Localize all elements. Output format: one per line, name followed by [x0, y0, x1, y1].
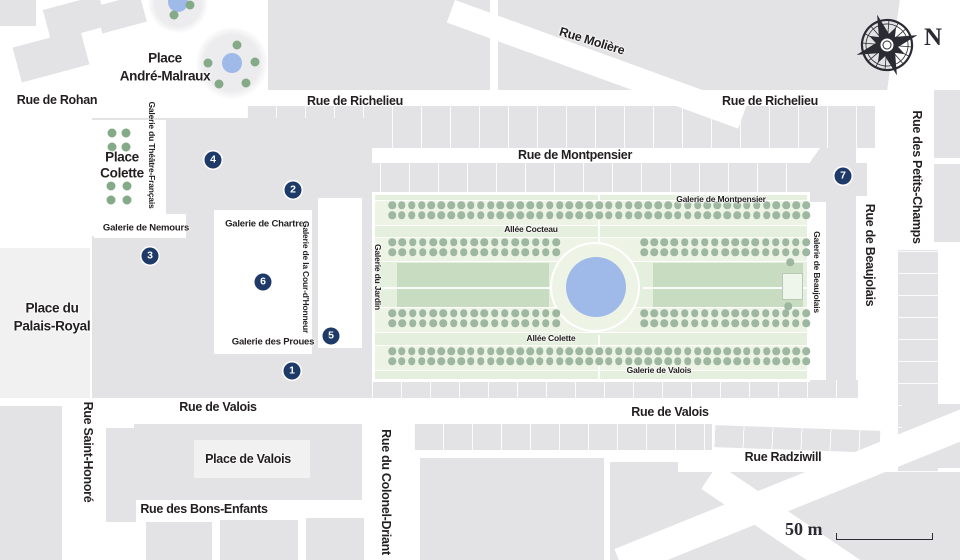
- poi-marker-5[interactable]: 5: [323, 328, 340, 345]
- scale-label: 50 m: [785, 519, 823, 540]
- compass-rose-icon: [854, 12, 920, 78]
- poi-marker-3[interactable]: 3: [142, 248, 159, 265]
- poi-marker-6[interactable]: 6: [255, 274, 272, 291]
- map-canvas: Rue de RohanPlaceAndré-MalrauxRue Molièr…: [0, 0, 960, 560]
- poi-marker-7[interactable]: 7: [835, 168, 852, 185]
- poi-marker-2[interactable]: 2: [285, 182, 302, 199]
- poi-marker-4[interactable]: 4: [205, 152, 222, 169]
- poi-marker-1[interactable]: 1: [284, 363, 301, 380]
- north-label: N: [924, 24, 942, 52]
- markers-layer: 1234567: [0, 0, 960, 560]
- scale-bar: [836, 533, 933, 540]
